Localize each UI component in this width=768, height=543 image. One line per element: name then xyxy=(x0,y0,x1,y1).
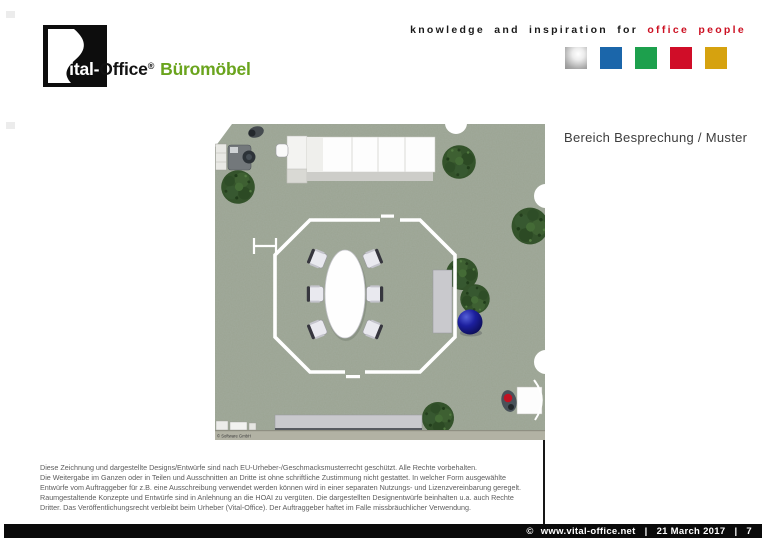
disclaimer-line-5: Dritter. Das Veröffentlichungsrecht verb… xyxy=(40,503,521,513)
counter-left-section xyxy=(307,137,323,172)
footer-separator: | xyxy=(645,526,648,537)
brochure-page: Vital-Office®Büromöbel knowledge and ins… xyxy=(0,0,768,543)
logo-brand-suffix: Office xyxy=(99,59,147,79)
page-edge-mark-top xyxy=(6,11,15,18)
logo-wordmark: Vital-Office®Büromöbel xyxy=(58,59,251,80)
color-square-gold xyxy=(705,47,727,69)
person-head xyxy=(508,404,514,410)
tagline: knowledge and inspiration for office peo… xyxy=(410,24,746,36)
vertical-rule xyxy=(543,440,545,524)
door-mark-top xyxy=(381,215,394,218)
color-square-silver xyxy=(565,47,587,69)
sideboard-right xyxy=(433,270,452,333)
blue-sphere xyxy=(458,310,483,335)
registered-mark: ® xyxy=(148,61,154,71)
cabinet-row xyxy=(276,136,435,183)
floor-plan: © Software GmbH xyxy=(215,124,545,440)
plan-baseboard-line xyxy=(215,430,545,431)
color-square-green xyxy=(635,47,657,69)
cabinet-base xyxy=(287,169,307,183)
page-edge-mark-mid xyxy=(6,122,15,129)
tagline-black-text: knowledge and inspiration for xyxy=(410,24,638,36)
footer-date: 21 March 2017 xyxy=(657,526,726,537)
disclaimer-line-4: Raumgestaltende Konzepte und Entwürfe si… xyxy=(40,493,521,503)
section-heading: Bereich Besprechung / Muster xyxy=(564,130,747,145)
white-chair xyxy=(276,144,288,157)
plan-baseboard xyxy=(215,430,545,440)
footer-bar: © www.vital-office.net | 21 March 2017 |… xyxy=(4,524,762,538)
disclaimer-line-2: Die Weitergabe im Ganzen oder in Teilen … xyxy=(40,473,521,483)
tagline-red-text: office people xyxy=(647,24,746,36)
color-square-blue xyxy=(600,47,622,69)
counter-shadow-strip xyxy=(307,172,433,181)
floor-plan-svg: © Software GmbH xyxy=(215,124,545,440)
sideboard-bottom xyxy=(275,415,422,430)
meeting-table xyxy=(325,250,365,338)
chair-left-middle xyxy=(307,285,324,302)
door-mark-bottom xyxy=(346,375,360,378)
dark-chair-seat xyxy=(249,130,256,137)
desk-item xyxy=(230,147,238,153)
footer-copyright-symbol: © xyxy=(526,526,533,537)
disclaimer-line-1: Diese Zeichnung und dargestellte Designs… xyxy=(40,463,521,473)
footer-page-number: 7 xyxy=(746,526,752,537)
plan-watermark: © Software GmbH xyxy=(217,434,251,439)
footer-website-link[interactable]: www.vital-office.net xyxy=(541,526,636,537)
color-square-red xyxy=(670,47,692,69)
brand-color-squares xyxy=(565,47,727,69)
long-counter xyxy=(307,137,435,172)
person-red-detail xyxy=(504,394,513,403)
shelf-left xyxy=(216,144,227,170)
logo-product-label: Büromöbel xyxy=(160,59,251,79)
disclaimer-line-3: Entwürfe vom Auftraggeber für z.B. eine … xyxy=(40,483,521,493)
disclaimer-text: Diese Zeichnung und dargestellte Designs… xyxy=(40,463,521,513)
desk-bottom-right xyxy=(517,387,542,414)
chair-right-middle xyxy=(367,285,384,302)
footer-separator: | xyxy=(734,526,737,537)
logo-brand-prefix: Vital- xyxy=(58,59,99,79)
office-chair-seat xyxy=(246,154,252,160)
